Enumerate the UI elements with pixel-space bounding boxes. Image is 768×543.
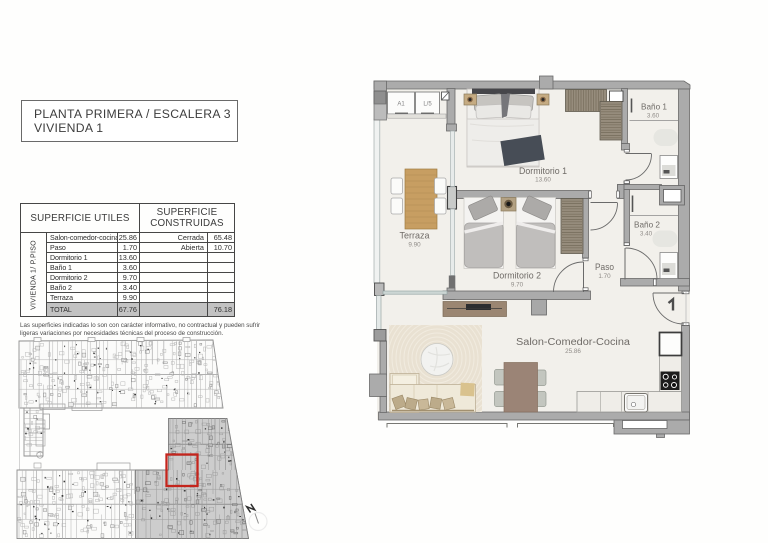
svg-text:3.60: 3.60 [647,113,660,120]
svg-text:Dormitorio 1: Dormitorio 1 [519,166,567,177]
svg-text:Paso: Paso [595,262,614,273]
svg-text:25.86: 25.86 [565,348,581,355]
svg-text:L/5: L/5 [423,102,432,108]
svg-text:Baño 1: Baño 1 [641,103,667,112]
svg-text:Salon-Comedor-Cocina: Salon-Comedor-Cocina [516,337,630,348]
svg-text:Dormitorio 2: Dormitorio 2 [493,271,541,282]
svg-text:3.40: 3.40 [640,231,653,238]
svg-text:Terraza: Terraza [400,231,431,242]
svg-text:Baño 2: Baño 2 [634,221,660,230]
svg-text:9.70: 9.70 [511,282,524,289]
svg-text:A1: A1 [397,102,405,108]
svg-text:13.60: 13.60 [535,177,551,184]
svg-text:9.90: 9.90 [408,242,421,249]
svg-text:1.70: 1.70 [598,273,611,280]
